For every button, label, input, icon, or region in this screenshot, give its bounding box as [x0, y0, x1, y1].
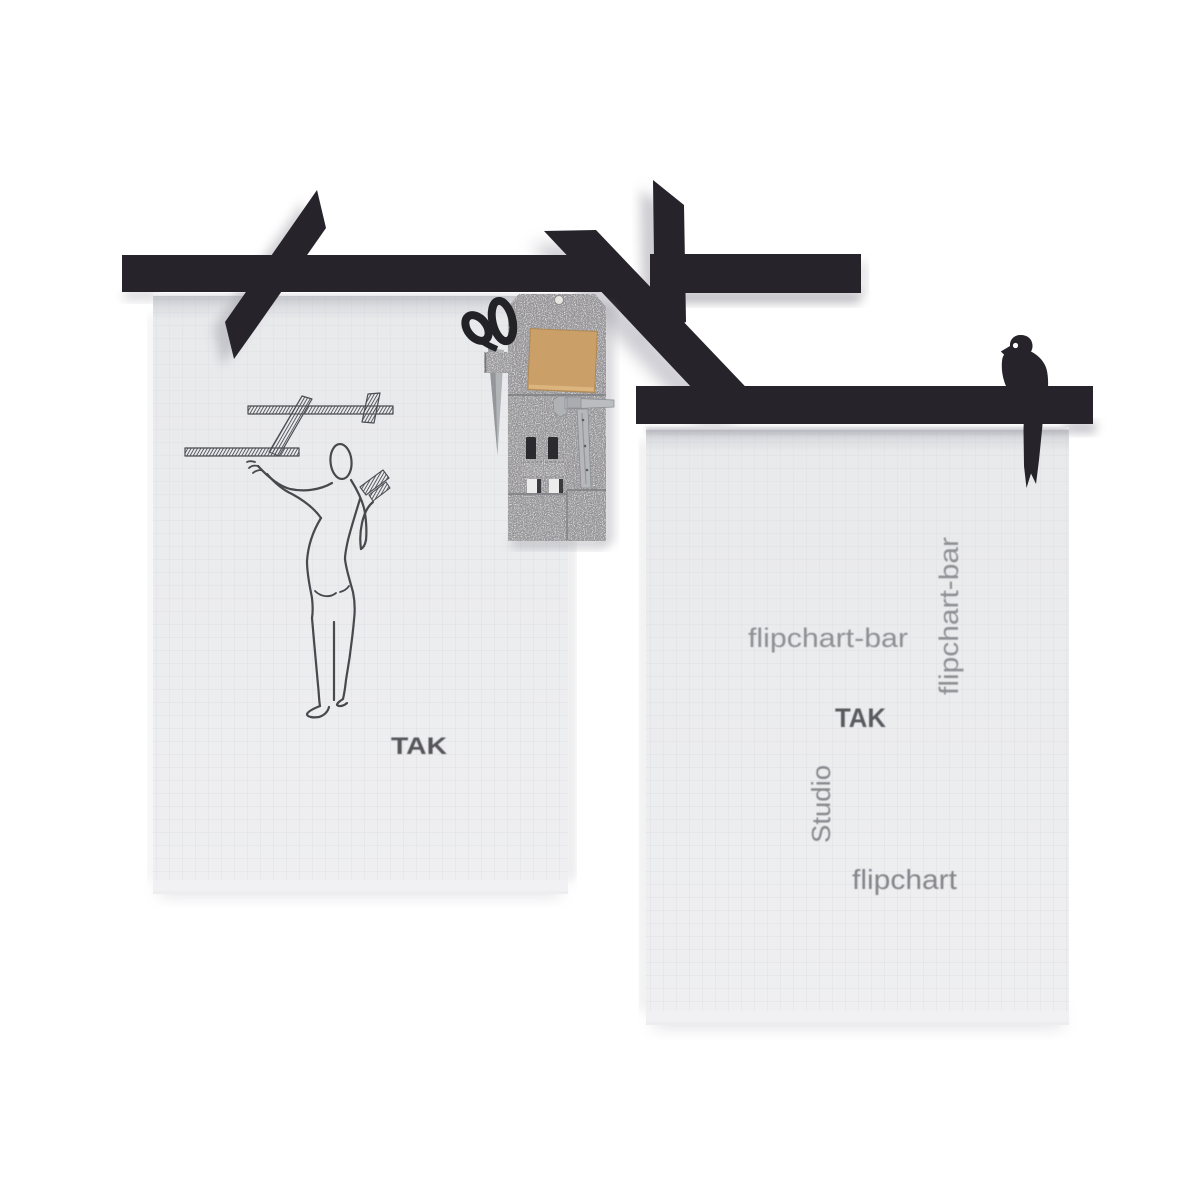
- svg-text:TAK: TAK: [391, 733, 448, 760]
- svg-text:TAK: TAK: [835, 703, 886, 733]
- svg-text:Studio: Studio: [806, 765, 836, 843]
- svg-text:flipchart: flipchart: [852, 864, 957, 895]
- svg-text:flipchart-bar: flipchart-bar: [748, 623, 908, 653]
- svg-text:flipchart-bar: flipchart-bar: [934, 537, 964, 695]
